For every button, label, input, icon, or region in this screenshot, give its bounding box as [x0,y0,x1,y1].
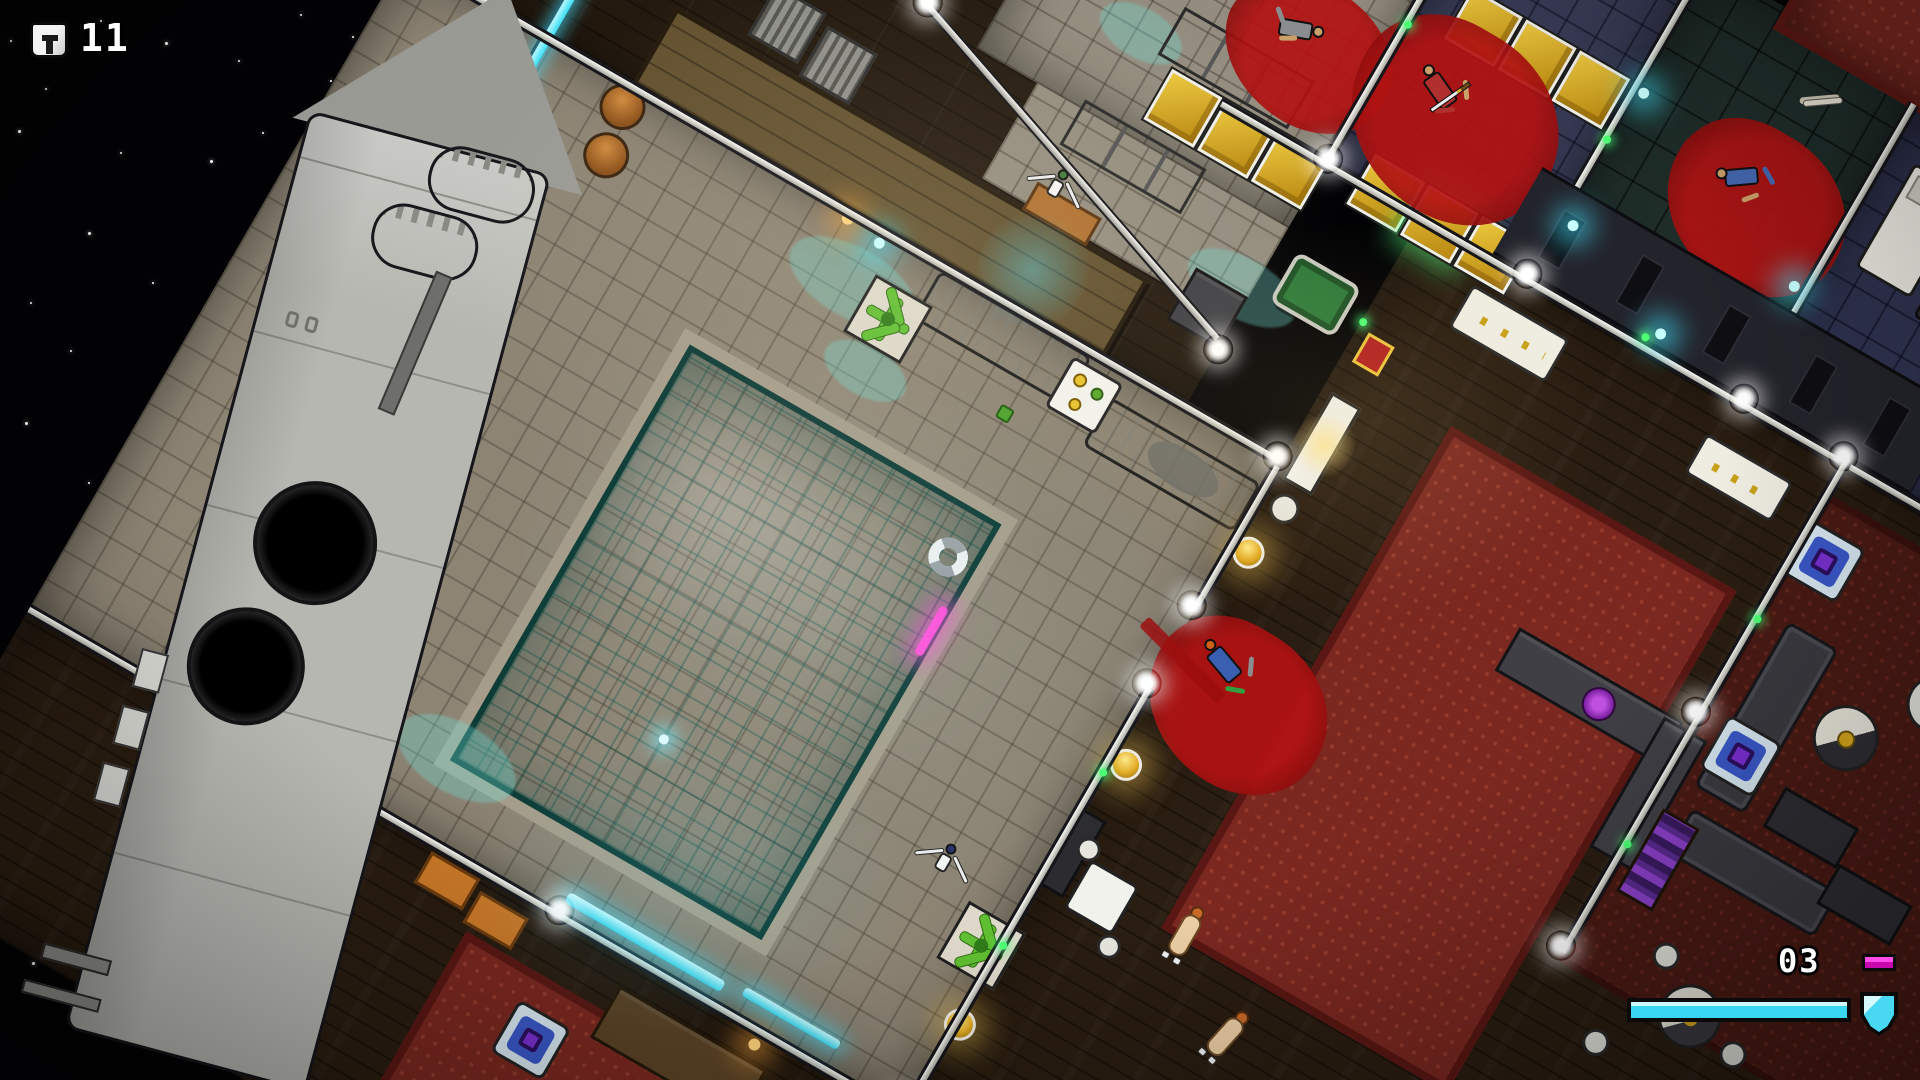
star [262,132,264,134]
star [120,152,122,154]
star [32,962,35,965]
item-counter: 03 [1778,942,1821,980]
mask-icon [30,22,68,58]
star [18,130,21,133]
star [88,232,91,235]
porthole [304,315,320,334]
game-viewport[interactable]: 11 03 [0,0,1920,1080]
star [352,36,354,38]
magenta-ammo-bar [1862,954,1896,971]
engine-exhaust [239,467,391,619]
porthole [284,310,300,329]
energy-bar [1627,998,1851,1022]
star [70,350,72,352]
engine-exhaust [174,594,319,739]
star [165,42,168,45]
star [30,302,32,304]
star [330,80,332,82]
hull-stripe [378,271,453,416]
star [238,60,240,62]
star [88,482,90,484]
star [152,282,154,284]
star [210,160,213,163]
star [25,422,28,425]
star [45,88,47,90]
star [10,40,12,42]
star [300,14,302,16]
kill-counter: 11 [80,16,130,60]
